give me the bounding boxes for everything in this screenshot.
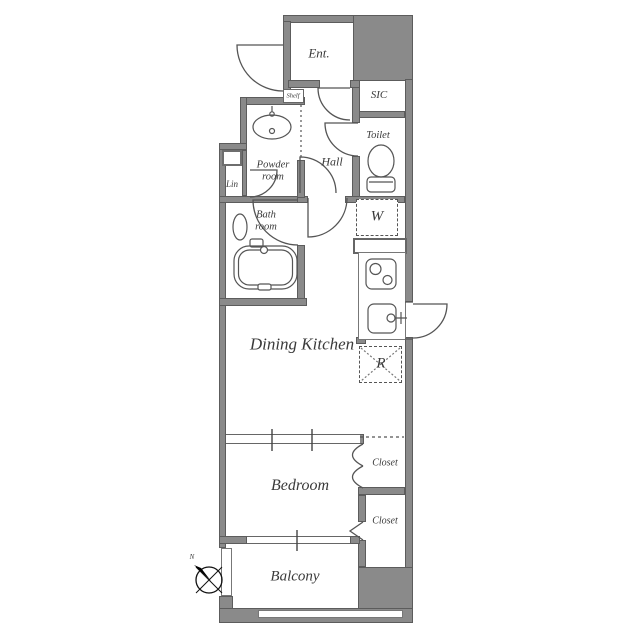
stove-icon [366,259,396,289]
closet-door-swing [350,522,363,540]
partition-tick-marks [272,429,312,451]
bath-door-arc [253,200,298,245]
powder-sink-icon [253,115,291,139]
toilet-door-arc [325,123,358,156]
stove-burner-2 [383,276,392,285]
kitchen-faucet-knob [387,314,395,322]
bathtub-drain-widget [258,284,271,290]
stove-burner-1 [370,264,381,275]
door-jamb-lines [405,302,413,339]
plan-lineart [0,0,640,640]
fridge-cross-lines [361,348,400,381]
kitchen-service-door-arc [413,304,447,338]
powder-hall-door-arc [300,157,336,193]
closet-folding-door [353,444,364,488]
toilet-bowl-icon [368,145,394,177]
powder-room-door-arc [250,170,277,197]
entrance-door-arc [237,45,283,91]
kitchen-faucet-lever [395,312,407,324]
bathtub-inner [239,250,293,285]
kitchen-sink-icon [368,304,396,333]
dining-kitchen-door-arc [308,198,347,237]
floor-plan: Ent. SIC Toilet Powder room Hall Lin Bat… [0,0,640,640]
toilet-tank-icon [367,177,395,192]
compass-icon [194,565,222,593]
bath-stool-icon [233,214,247,240]
powder-sink-drain [270,129,275,134]
hall-door-arc [318,88,350,120]
